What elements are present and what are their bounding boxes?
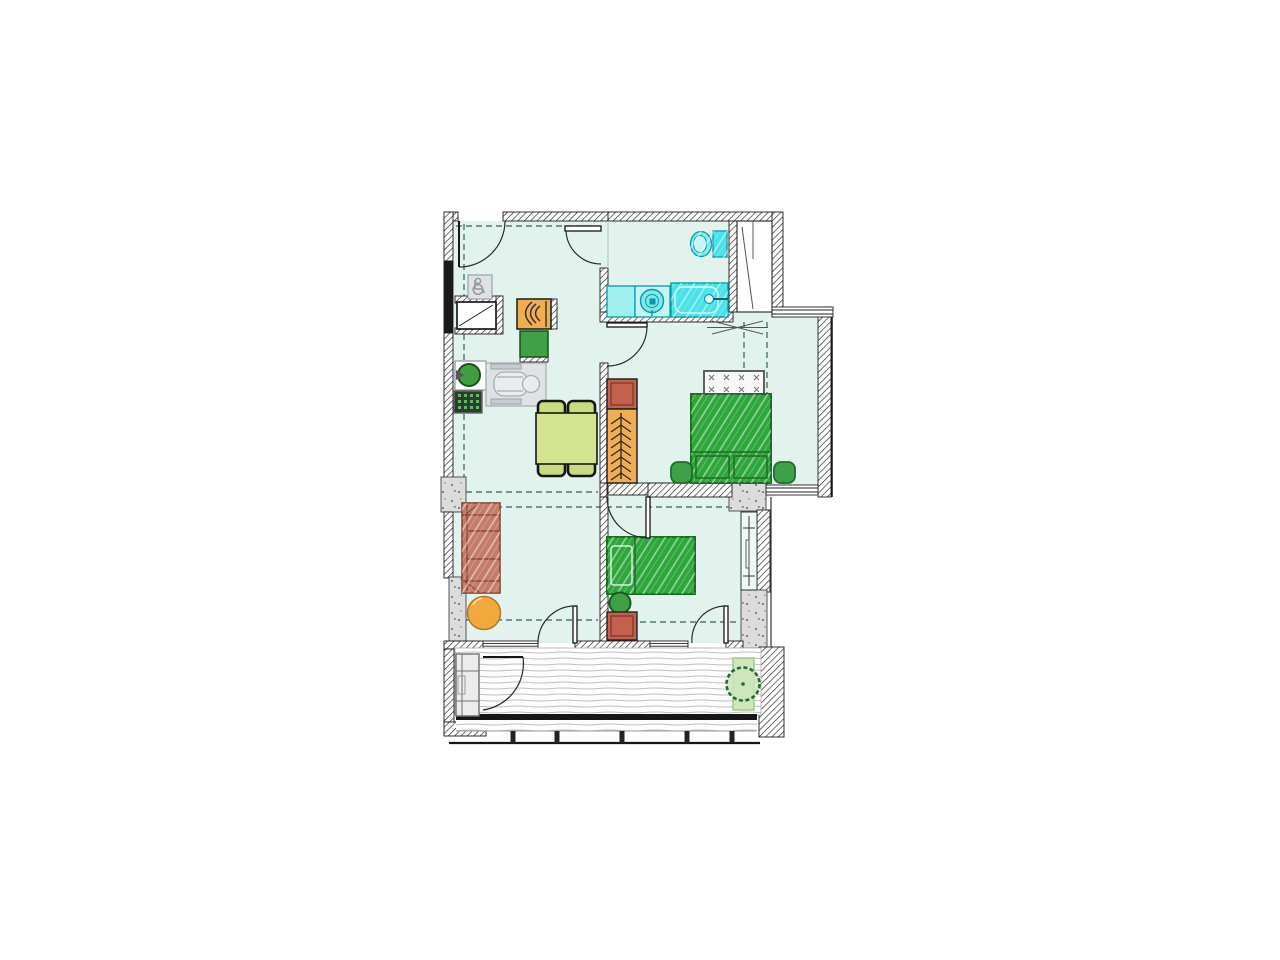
tub-faucet-icon bbox=[705, 295, 714, 304]
railing-post bbox=[511, 731, 516, 743]
balcony-edge bbox=[456, 714, 757, 720]
wall-segment bbox=[772, 212, 783, 317]
wall-bay-east bbox=[818, 307, 831, 497]
single-bed bbox=[607, 537, 695, 594]
floor-bedroom-bay bbox=[772, 312, 821, 486]
wall-balcony-west bbox=[444, 649, 454, 722]
railing-post bbox=[685, 731, 690, 743]
dining-table bbox=[536, 413, 597, 464]
bed-headboard bbox=[704, 371, 764, 396]
wall-segment bbox=[600, 483, 607, 497]
wall-segment bbox=[444, 512, 453, 578]
floor-plan-drawing bbox=[0, 0, 1280, 960]
bathtub bbox=[671, 283, 728, 317]
sofa bbox=[462, 503, 500, 593]
railing-post bbox=[555, 731, 560, 743]
concrete-column bbox=[741, 590, 767, 648]
stove bbox=[454, 391, 482, 413]
balcony-deck bbox=[455, 648, 761, 715]
wall-segment bbox=[444, 261, 453, 333]
vanity-counter bbox=[607, 286, 635, 317]
balcony-storage-cabinet bbox=[456, 654, 479, 716]
dining-set bbox=[536, 401, 597, 476]
floor-plan-page bbox=[0, 0, 1280, 960]
bedside-stool bbox=[671, 462, 692, 483]
balcony bbox=[449, 648, 761, 743]
wall-segment bbox=[608, 212, 775, 221]
wardrobe-tall bbox=[607, 379, 637, 483]
wheelchair-sign-icon bbox=[468, 275, 492, 299]
kitchen-sink bbox=[455, 361, 486, 390]
railing-post bbox=[730, 731, 735, 743]
wall-bedroom2-north bbox=[648, 483, 732, 497]
wall-segment bbox=[757, 510, 770, 592]
living-room bbox=[462, 503, 501, 630]
plant-pot bbox=[610, 593, 631, 614]
wheelchair-user-icon bbox=[486, 363, 546, 406]
window-bedroom1-south bbox=[766, 485, 818, 495]
balcony-railing[interactable] bbox=[449, 731, 760, 743]
nightstand bbox=[607, 612, 637, 640]
railing-post bbox=[620, 731, 625, 743]
wall-shaft-west bbox=[729, 221, 737, 312]
washing-machine bbox=[635, 286, 670, 317]
wall-segment bbox=[444, 212, 453, 261]
double-bed bbox=[691, 394, 771, 483]
entry-closet bbox=[457, 302, 496, 329]
wall-segment bbox=[444, 333, 453, 478]
wall-balcony-east bbox=[759, 647, 784, 737]
bedside-stool bbox=[774, 462, 795, 483]
wall-segment bbox=[496, 296, 503, 334]
hall-wardrobe bbox=[517, 299, 551, 329]
wall-segment bbox=[503, 212, 608, 221]
toilet bbox=[690, 231, 728, 258]
balcony-lower-band bbox=[456, 720, 757, 731]
installation-shaft bbox=[737, 221, 772, 312]
wall-segment bbox=[551, 299, 557, 329]
ottoman-round bbox=[468, 597, 501, 630]
window-bay-north bbox=[772, 307, 833, 317]
window-bedroom2-east bbox=[741, 512, 757, 590]
kitchen-cabinet-green bbox=[520, 331, 548, 357]
